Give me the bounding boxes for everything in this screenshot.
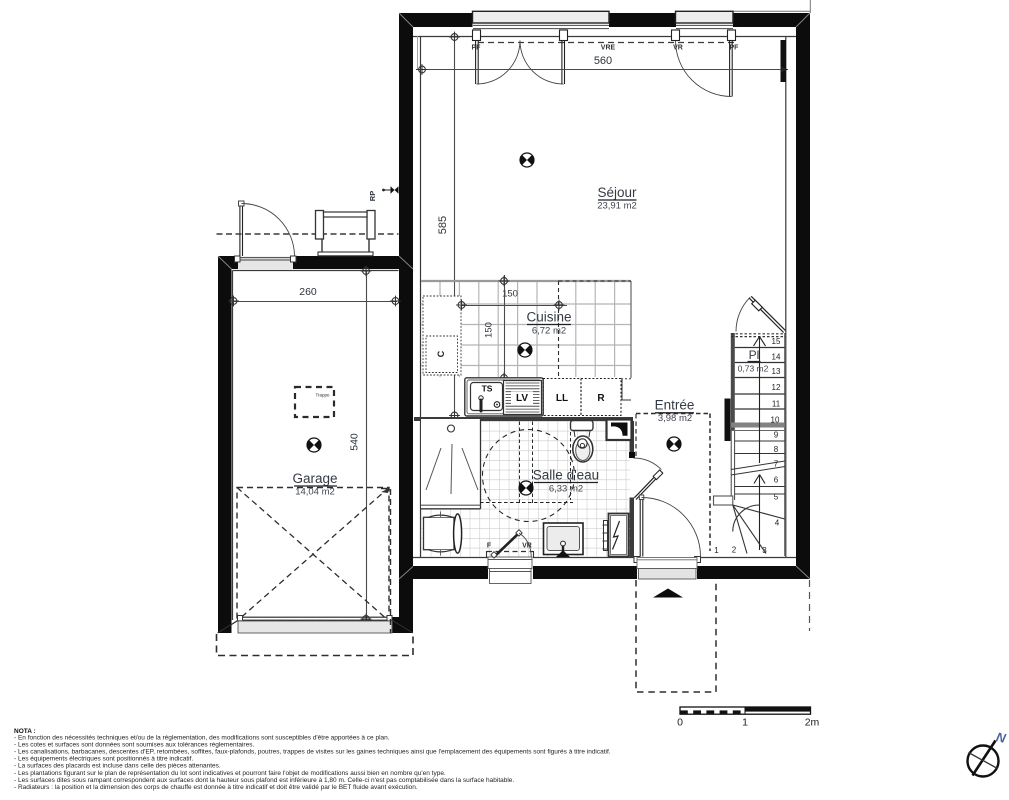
- svg-text:F: F: [487, 543, 492, 550]
- svg-text:8: 8: [774, 445, 779, 454]
- svg-text:- La surfaces des placards est: - La surfaces des placards est incluse d…: [14, 763, 221, 770]
- svg-text:1: 1: [714, 546, 719, 555]
- svg-text:260: 260: [299, 286, 317, 298]
- svg-text:0,73 m2: 0,73 m2: [738, 364, 769, 374]
- svg-text:585: 585: [437, 216, 449, 234]
- svg-text:3: 3: [762, 546, 767, 555]
- svg-text:- Les plantations figurant sur: - Les plantations figurant sur le plan d…: [14, 770, 446, 777]
- svg-text:12: 12: [772, 383, 781, 392]
- svg-text:RP: RP: [368, 191, 377, 201]
- svg-text:- Les canalisations, barbacane: - Les canalisations, barbacanes, descent…: [14, 749, 611, 756]
- svg-text:PF: PF: [472, 45, 482, 52]
- svg-text:VR: VR: [673, 45, 683, 52]
- svg-text:15: 15: [772, 337, 781, 346]
- svg-text:540: 540: [349, 433, 361, 451]
- svg-text:14: 14: [772, 353, 781, 362]
- svg-text:150: 150: [484, 322, 495, 338]
- svg-text:6,72 m2: 6,72 m2: [532, 326, 566, 337]
- svg-text:6,33 m2: 6,33 m2: [549, 484, 583, 495]
- svg-text:560: 560: [594, 55, 612, 67]
- svg-text:9: 9: [774, 431, 779, 440]
- svg-text:Entrée: Entrée: [655, 398, 695, 413]
- svg-text:10: 10: [771, 416, 780, 425]
- svg-text:- Les cotes et surfaces sont d: - Les cotes et surfaces sont données son…: [14, 742, 254, 749]
- svg-text:VRE: VRE: [601, 45, 616, 52]
- svg-text:7: 7: [774, 460, 779, 469]
- svg-text:2: 2: [732, 546, 737, 555]
- svg-text:Cuisine: Cuisine: [526, 310, 571, 325]
- svg-text:1: 1: [742, 717, 748, 729]
- svg-text:LL: LL: [556, 393, 568, 404]
- svg-text:Pl: Pl: [749, 348, 760, 362]
- svg-text:6: 6: [774, 476, 779, 485]
- svg-text:2m: 2m: [805, 717, 820, 729]
- svg-text:TS: TS: [482, 384, 493, 394]
- svg-text:3,98 m2: 3,98 m2: [658, 413, 692, 424]
- svg-text:0: 0: [677, 717, 683, 729]
- svg-text:13: 13: [772, 367, 781, 376]
- svg-text:Trappe: Trappe: [315, 393, 330, 398]
- svg-text:R: R: [597, 393, 605, 404]
- svg-text:- Radiateurs : la position et: - Radiateurs : la position et la dimensi…: [14, 784, 418, 791]
- svg-text:LV: LV: [516, 393, 528, 404]
- svg-text:23,91 m2: 23,91 m2: [597, 201, 637, 212]
- svg-text:Salle d'eau: Salle d'eau: [533, 468, 599, 483]
- svg-text:- Les équipements électriques: - Les équipements électriques sont posit…: [14, 756, 193, 763]
- svg-text:11: 11: [772, 400, 781, 409]
- svg-text:4: 4: [775, 519, 780, 528]
- svg-text:PF: PF: [730, 45, 740, 52]
- svg-text:Garage: Garage: [292, 471, 337, 486]
- svg-text:Séjour: Séjour: [597, 185, 637, 200]
- svg-text:- En fonction des nécessités t: - En fonction des nécessités techniques …: [14, 735, 390, 742]
- svg-text:- Les surfaces dites sous ramp: - Les surfaces dites sous rampant corres…: [14, 777, 514, 784]
- svg-text:5: 5: [774, 493, 779, 502]
- svg-text:C: C: [436, 350, 446, 357]
- svg-text:VR: VR: [522, 543, 532, 550]
